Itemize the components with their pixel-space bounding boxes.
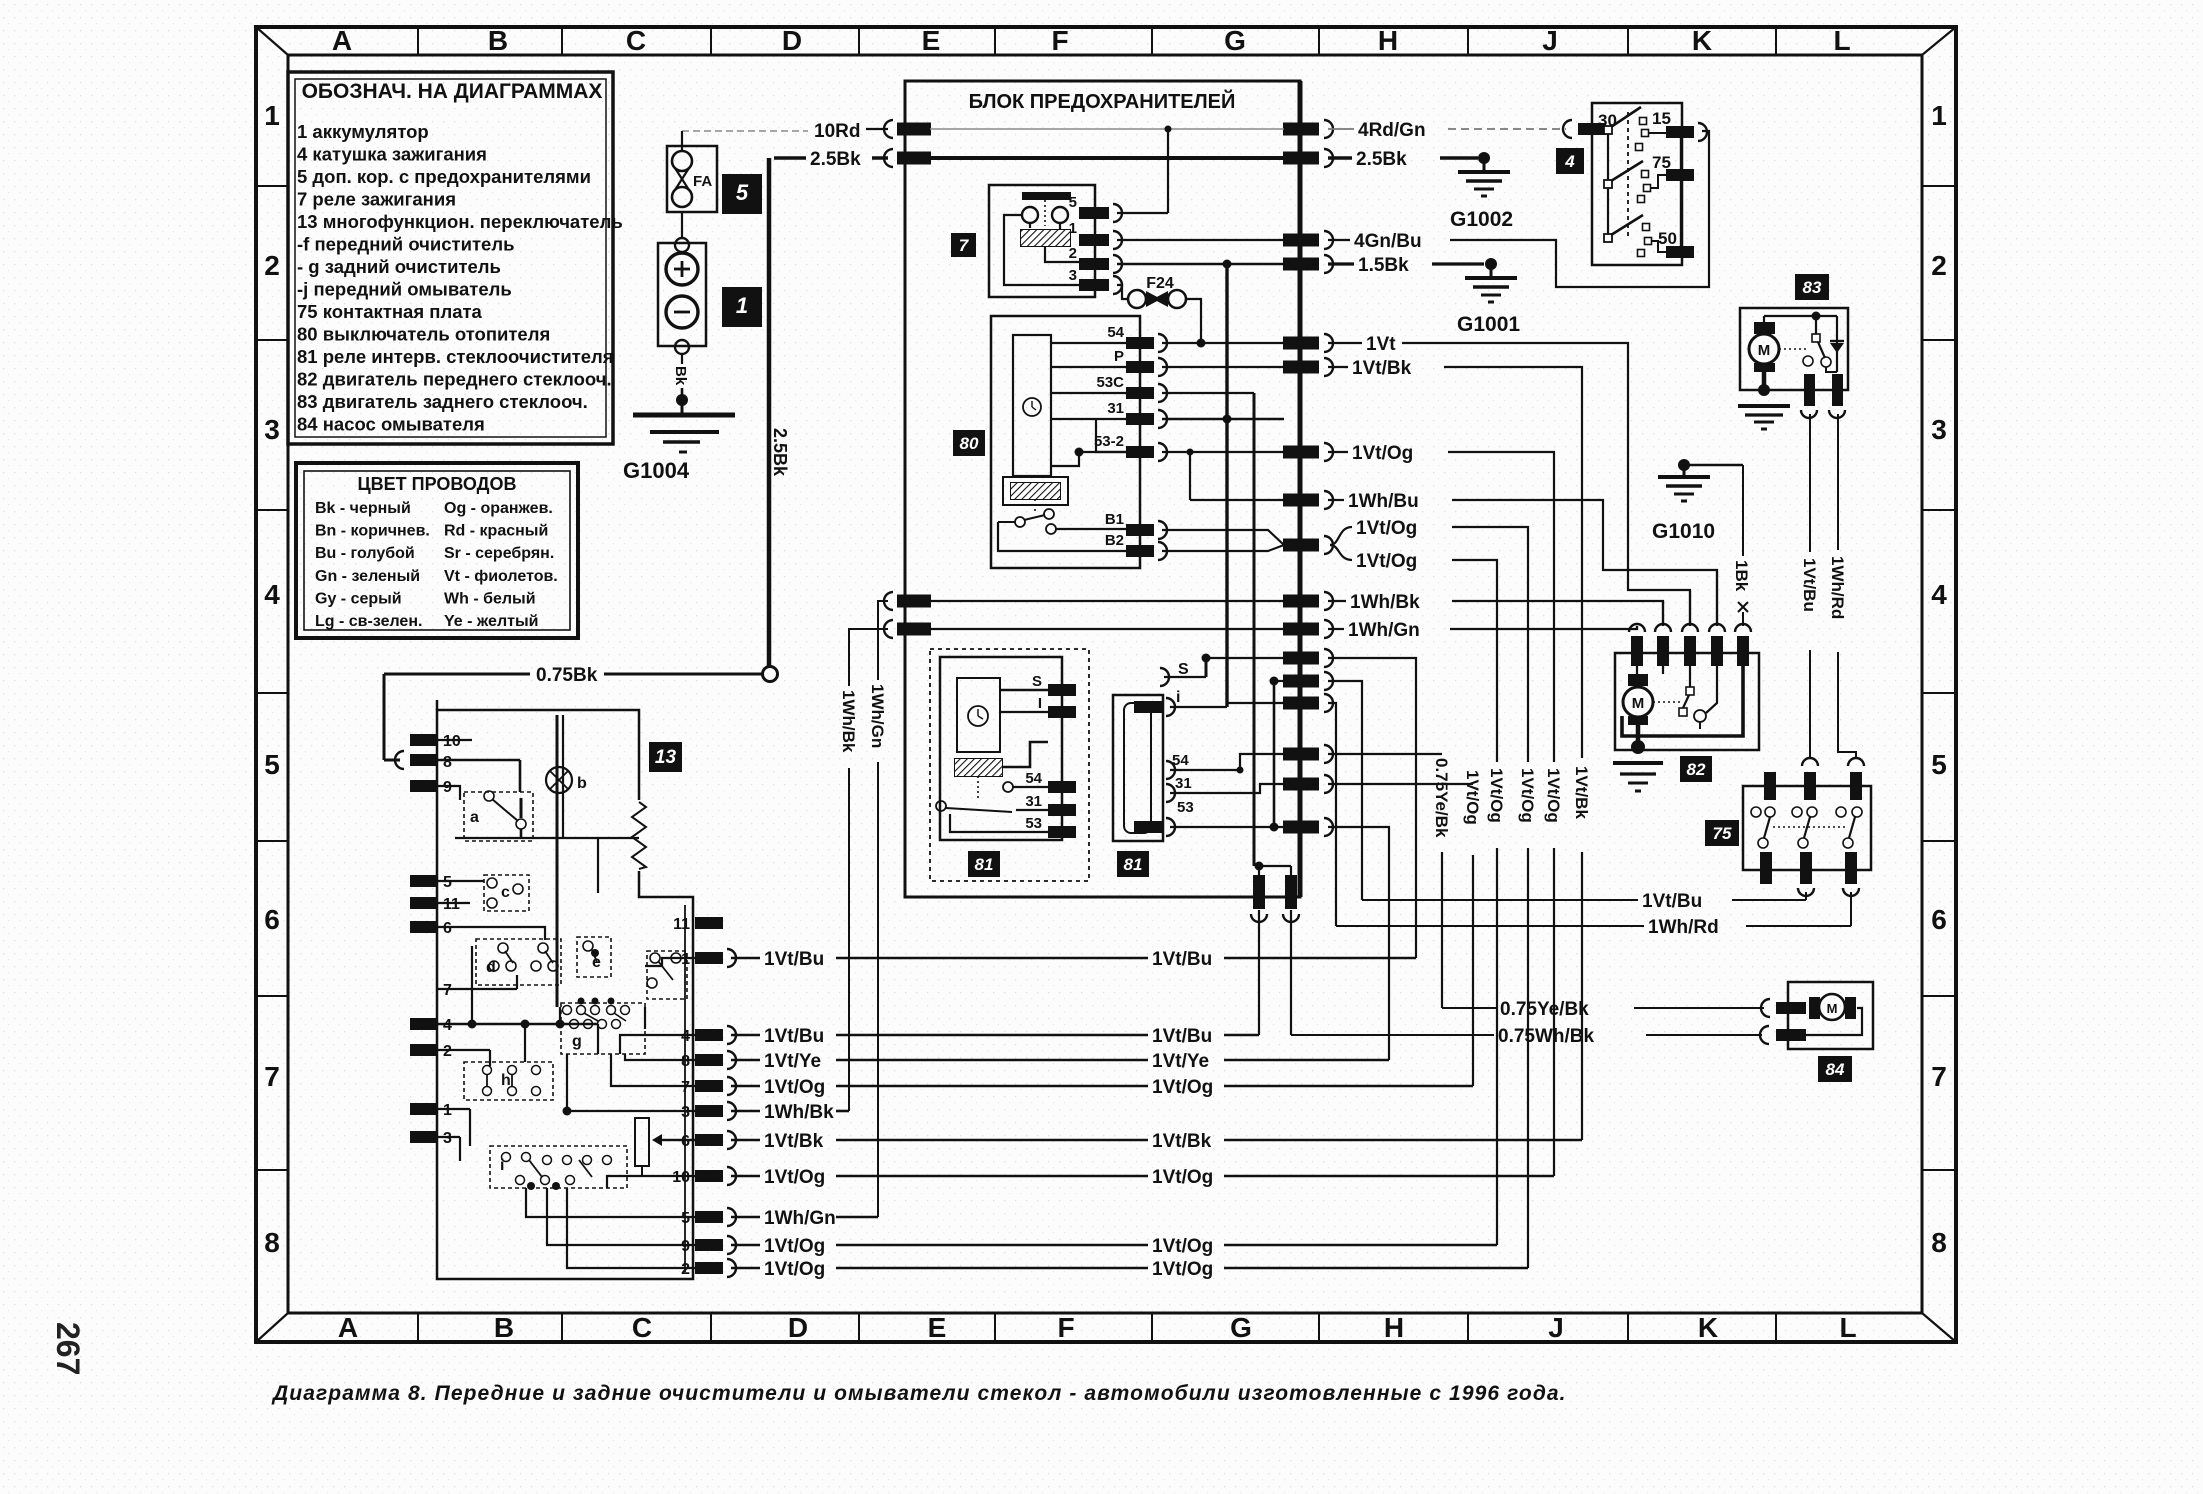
svg-text:E: E <box>928 1312 947 1343</box>
svg-text:1Vt/Og: 1Vt/Og <box>1352 443 1413 464</box>
svg-text:S: S <box>1032 673 1042 690</box>
svg-text:7: 7 <box>959 236 970 255</box>
svg-text:1Wh/Gn: 1Wh/Gn <box>868 684 887 748</box>
svg-text:Og - оранжев.: Og - оранжев. <box>444 500 553 517</box>
svg-text:Bu - голубой: Bu - голубой <box>315 545 415 562</box>
svg-text:5 доп. кор. с предохранителями: 5 доп. кор. с предохранителями <box>297 166 591 187</box>
svg-text:2: 2 <box>264 250 280 281</box>
svg-text:1Wh/Bu: 1Wh/Bu <box>1348 491 1419 512</box>
svg-text:6: 6 <box>443 920 452 937</box>
svg-text:4Gn/Bu: 4Gn/Bu <box>1354 231 1422 252</box>
svg-text:2.5Bk: 2.5Bk <box>770 428 790 477</box>
svg-text:1Wh/Bk: 1Wh/Bk <box>764 1102 834 1123</box>
svg-text:2: 2 <box>1069 245 1077 262</box>
svg-text:i: i <box>1176 689 1180 706</box>
svg-text:J: J <box>1542 25 1558 56</box>
svg-text:7: 7 <box>681 1079 690 1096</box>
svg-text:-j передний омыватель: -j передний омыватель <box>297 279 512 300</box>
svg-text:Lg - св-зелен.: Lg - св-зелен. <box>315 613 422 630</box>
svg-text:B2: B2 <box>1105 532 1124 549</box>
svg-text:13 многофункцион. переключател: 13 многофункцион. переключатель <box>297 211 623 232</box>
svg-text:1Wh/Bk: 1Wh/Bk <box>839 690 858 753</box>
svg-text:75: 75 <box>1713 824 1732 843</box>
svg-text:31: 31 <box>1025 793 1042 810</box>
svg-text:Gn - зеленый: Gn - зеленый <box>315 568 420 585</box>
svg-text:1Vt/Bu: 1Vt/Bu <box>1152 1026 1212 1047</box>
svg-text:53: 53 <box>1025 815 1042 832</box>
svg-text:53-2: 53-2 <box>1094 433 1124 450</box>
svg-text:1Vt/Bk: 1Vt/Bk <box>764 1131 824 1152</box>
svg-text:4: 4 <box>264 579 280 610</box>
svg-text:1: 1 <box>1931 100 1947 131</box>
svg-text:1Vt/Ye: 1Vt/Ye <box>764 1051 821 1072</box>
svg-text:K: K <box>1698 1312 1718 1343</box>
svg-text:1Vt/Bk: 1Vt/Bk <box>1152 1131 1212 1152</box>
svg-text:Bk - черный: Bk - черный <box>315 500 411 517</box>
svg-text:B: B <box>494 1312 514 1343</box>
svg-text:81 реле интерв. стеклоочистите: 81 реле интерв. стеклоочистителя <box>297 346 614 367</box>
svg-text:G1004: G1004 <box>623 458 690 483</box>
svg-text:13: 13 <box>655 747 677 768</box>
svg-text:1Vt/Ye: 1Vt/Ye <box>1152 1051 1209 1072</box>
svg-text:1Wh/Rd: 1Wh/Rd <box>1828 556 1847 619</box>
svg-text:-f передний очиститель: -f передний очиститель <box>297 234 514 255</box>
svg-text:2.5Bk: 2.5Bk <box>1356 149 1407 170</box>
svg-text:83 двигатель заднего стеклооч.: 83 двигатель заднего стеклооч. <box>297 391 588 412</box>
svg-text:81: 81 <box>1124 855 1143 874</box>
svg-text:10: 10 <box>672 1169 690 1186</box>
svg-text:82: 82 <box>1687 760 1706 779</box>
svg-text:8: 8 <box>443 754 452 771</box>
svg-text:7: 7 <box>264 1061 280 1092</box>
svg-text:11: 11 <box>673 916 690 933</box>
svg-text:D: D <box>782 25 802 56</box>
svg-text:c: c <box>501 884 510 901</box>
svg-text:G1001: G1001 <box>1457 313 1520 336</box>
svg-text:8: 8 <box>264 1227 280 1258</box>
svg-text:3: 3 <box>443 1130 452 1147</box>
svg-text:3: 3 <box>681 1104 690 1121</box>
svg-text:F: F <box>1051 25 1068 56</box>
svg-text:1Vt: 1Vt <box>1366 334 1396 355</box>
svg-text:5: 5 <box>1069 194 1077 211</box>
svg-text:267: 267 <box>50 1322 86 1375</box>
svg-text:4: 4 <box>1931 579 1947 610</box>
svg-text:1Vt/Bu: 1Vt/Bu <box>764 1026 824 1047</box>
svg-text:1Vt/Og: 1Vt/Og <box>1152 1167 1213 1188</box>
svg-text:82 двигатель переднего стеклоо: 82 двигатель переднего стеклооч. <box>297 369 612 390</box>
svg-text:3: 3 <box>1069 267 1077 284</box>
svg-text:1Bk: 1Bk <box>1732 560 1751 592</box>
svg-text:K: K <box>1692 25 1712 56</box>
svg-text:1.5Bk: 1.5Bk <box>1358 255 1409 276</box>
svg-text:1Vt/Og: 1Vt/Og <box>1544 768 1563 823</box>
svg-text:1: 1 <box>1069 220 1077 237</box>
svg-text:7: 7 <box>443 982 452 999</box>
svg-text:S: S <box>1178 661 1189 678</box>
svg-text:1Vt/Og: 1Vt/Og <box>1356 518 1417 539</box>
svg-text:L: L <box>1839 1312 1856 1343</box>
svg-text:31: 31 <box>1107 400 1124 417</box>
svg-text:1Vt/Og: 1Vt/Og <box>1356 551 1417 572</box>
svg-text:B1: B1 <box>1105 511 1124 528</box>
svg-text:1Vt/Bu: 1Vt/Bu <box>764 949 824 970</box>
svg-text:БЛОК ПРЕДОХРАНИТЕЛЕЙ: БЛОК ПРЕДОХРАНИТЕЛЕЙ <box>969 89 1236 113</box>
svg-text:1Vt/Og: 1Vt/Og <box>1152 1077 1213 1098</box>
svg-text:6: 6 <box>681 1133 690 1150</box>
svg-text:M: M <box>1758 342 1771 359</box>
svg-text:6: 6 <box>1931 904 1947 935</box>
svg-text:5: 5 <box>264 749 280 780</box>
svg-text:C: C <box>632 1312 652 1343</box>
svg-text:1: 1 <box>264 100 280 131</box>
svg-text:83: 83 <box>1803 278 1822 297</box>
svg-text:1Vt/Og: 1Vt/Og <box>1463 770 1482 825</box>
svg-text:C: C <box>626 25 646 56</box>
svg-text:0.75Ye/Bk: 0.75Ye/Bk <box>1500 999 1589 1020</box>
svg-text:5: 5 <box>443 874 452 891</box>
svg-text:b: b <box>577 775 587 792</box>
svg-text:Wh - белый: Wh - белый <box>444 590 536 607</box>
svg-text:9: 9 <box>681 1238 690 1255</box>
svg-text:1 аккумулятор: 1 аккумулятор <box>297 121 429 142</box>
svg-text:5: 5 <box>1931 749 1947 780</box>
svg-text:ОБОЗНАЧ. НА ДИАГРАММАХ: ОБОЗНАЧ. НА ДИАГРАММАХ <box>302 80 603 103</box>
svg-text:E: E <box>922 25 941 56</box>
svg-text:1Vt/Og: 1Vt/Og <box>1487 768 1506 823</box>
svg-text:10Rd: 10Rd <box>814 121 860 142</box>
svg-text:0.75Wh/Bk: 0.75Wh/Bk <box>1498 1026 1595 1047</box>
svg-text:1Vt/Og: 1Vt/Og <box>764 1077 825 1098</box>
svg-text:F24: F24 <box>1146 275 1174 292</box>
svg-text:1: 1 <box>681 951 690 968</box>
svg-text:80: 80 <box>960 434 979 453</box>
svg-text:3: 3 <box>1931 414 1947 445</box>
svg-text:G: G <box>1224 25 1246 56</box>
svg-text:I: I <box>1038 695 1042 712</box>
svg-text:J: J <box>1548 1312 1564 1343</box>
svg-text:81: 81 <box>975 855 994 874</box>
svg-text:A: A <box>332 25 352 56</box>
svg-text:Диаграмма 8. Передние и задние: Диаграмма 8. Передние и задние очистител… <box>271 1382 1567 1405</box>
svg-text:Rd - красный: Rd - красный <box>444 523 548 540</box>
svg-text:84 насос омывателя: 84 насос омывателя <box>297 414 485 435</box>
svg-text:1Vt/Og: 1Vt/Og <box>764 1236 825 1257</box>
svg-text:2.5Bk: 2.5Bk <box>810 149 861 170</box>
svg-text:G: G <box>1230 1312 1252 1343</box>
svg-text:Ye - желтый: Ye - желтый <box>444 613 538 630</box>
svg-text:1Vt/Bu: 1Vt/Bu <box>1642 891 1702 912</box>
svg-text:1Vt/Og: 1Vt/Og <box>1518 768 1537 823</box>
svg-text:54: 54 <box>1172 752 1189 769</box>
svg-text:1Wh/Gn: 1Wh/Gn <box>1348 620 1420 641</box>
svg-text:54: 54 <box>1025 770 1042 787</box>
svg-text:D: D <box>788 1312 808 1343</box>
svg-text:4: 4 <box>443 1017 452 1034</box>
svg-text:4: 4 <box>1564 152 1575 171</box>
svg-text:H: H <box>1384 1312 1404 1343</box>
svg-text:6: 6 <box>264 904 280 935</box>
svg-text:1: 1 <box>736 293 748 318</box>
svg-text:FA: FA <box>693 173 712 190</box>
svg-text:5: 5 <box>736 180 749 205</box>
svg-text:ЦВЕТ ПРОВОДОВ: ЦВЕТ ПРОВОДОВ <box>358 474 517 494</box>
svg-text:1Vt/Og: 1Vt/Og <box>764 1259 825 1280</box>
svg-text:- g задний очиститель: - g задний очиститель <box>297 256 501 277</box>
svg-text:1Vt/Bk: 1Vt/Bk <box>1352 358 1412 379</box>
svg-text:2: 2 <box>681 1261 690 1278</box>
svg-text:1Vt/Bk: 1Vt/Bk <box>1572 766 1591 819</box>
svg-text:0.75Ye/Bk: 0.75Ye/Bk <box>1432 758 1451 838</box>
svg-text:Bn - коричнев.: Bn - коричнев. <box>315 523 430 540</box>
svg-text:G1010: G1010 <box>1652 520 1715 543</box>
svg-text:4Rd/Gn: 4Rd/Gn <box>1358 120 1426 141</box>
svg-text:P: P <box>1114 348 1124 365</box>
svg-text:Sr - серебрян.: Sr - серебрян. <box>444 545 554 562</box>
svg-text:0.75Bk: 0.75Bk <box>536 665 598 686</box>
svg-text:a: a <box>470 809 479 826</box>
svg-text:Vt - фиолетов.: Vt - фиолетов. <box>444 568 558 585</box>
svg-text:10: 10 <box>443 733 461 750</box>
svg-text:54: 54 <box>1107 324 1124 341</box>
svg-text:M: M <box>1632 695 1645 712</box>
svg-text:1Wh/Bk: 1Wh/Bk <box>1350 592 1420 613</box>
svg-text:A: A <box>338 1312 358 1343</box>
svg-text:31: 31 <box>1175 775 1192 792</box>
svg-text:L: L <box>1833 25 1850 56</box>
svg-text:80 выключатель отопителя: 80 выключатель отопителя <box>297 324 550 345</box>
svg-text:Gy - серый: Gy - серый <box>315 590 402 607</box>
svg-text:8: 8 <box>681 1053 690 1070</box>
svg-text:1Vt/Og: 1Vt/Og <box>1152 1236 1213 1257</box>
svg-text:1Vt/Bu: 1Vt/Bu <box>1152 949 1212 970</box>
svg-text:2: 2 <box>1931 250 1947 281</box>
svg-text:50: 50 <box>1658 229 1677 248</box>
svg-text:4 катушка зажигания: 4 катушка зажигания <box>297 144 487 165</box>
svg-text:G1002: G1002 <box>1450 208 1513 231</box>
svg-text:1Wh/Rd: 1Wh/Rd <box>1648 917 1719 938</box>
svg-text:4: 4 <box>681 1028 690 1045</box>
svg-text:1: 1 <box>443 1102 452 1119</box>
svg-text:75 контактная плата: 75 контактная плата <box>297 301 483 322</box>
svg-text:1Wh/Gn: 1Wh/Gn <box>764 1208 836 1229</box>
svg-text:7 реле зажигания: 7 реле зажигания <box>297 189 456 210</box>
svg-text:53: 53 <box>1177 799 1194 816</box>
svg-text:h: h <box>501 1072 511 1089</box>
svg-text:H: H <box>1378 25 1398 56</box>
svg-text:M: M <box>1827 1001 1838 1016</box>
svg-text:53C: 53C <box>1096 374 1124 391</box>
svg-text:8: 8 <box>1931 1227 1947 1258</box>
svg-text:g: g <box>572 1033 582 1050</box>
svg-text:F: F <box>1057 1312 1074 1343</box>
svg-text:5: 5 <box>681 1210 690 1227</box>
svg-text:1Vt/Og: 1Vt/Og <box>1152 1259 1213 1280</box>
svg-text:3: 3 <box>264 414 280 445</box>
svg-text:1Vt/Bu: 1Vt/Bu <box>1800 558 1819 612</box>
svg-text:1Vt/Og: 1Vt/Og <box>764 1167 825 1188</box>
svg-text:15: 15 <box>1652 109 1671 128</box>
svg-text:B: B <box>488 25 508 56</box>
svg-text:2: 2 <box>443 1043 452 1060</box>
svg-text:84: 84 <box>1826 1060 1845 1079</box>
svg-text:11: 11 <box>443 896 460 913</box>
svg-text:9: 9 <box>443 779 452 796</box>
svg-text:Bk: Bk <box>672 366 689 386</box>
svg-text:7: 7 <box>1931 1061 1947 1092</box>
